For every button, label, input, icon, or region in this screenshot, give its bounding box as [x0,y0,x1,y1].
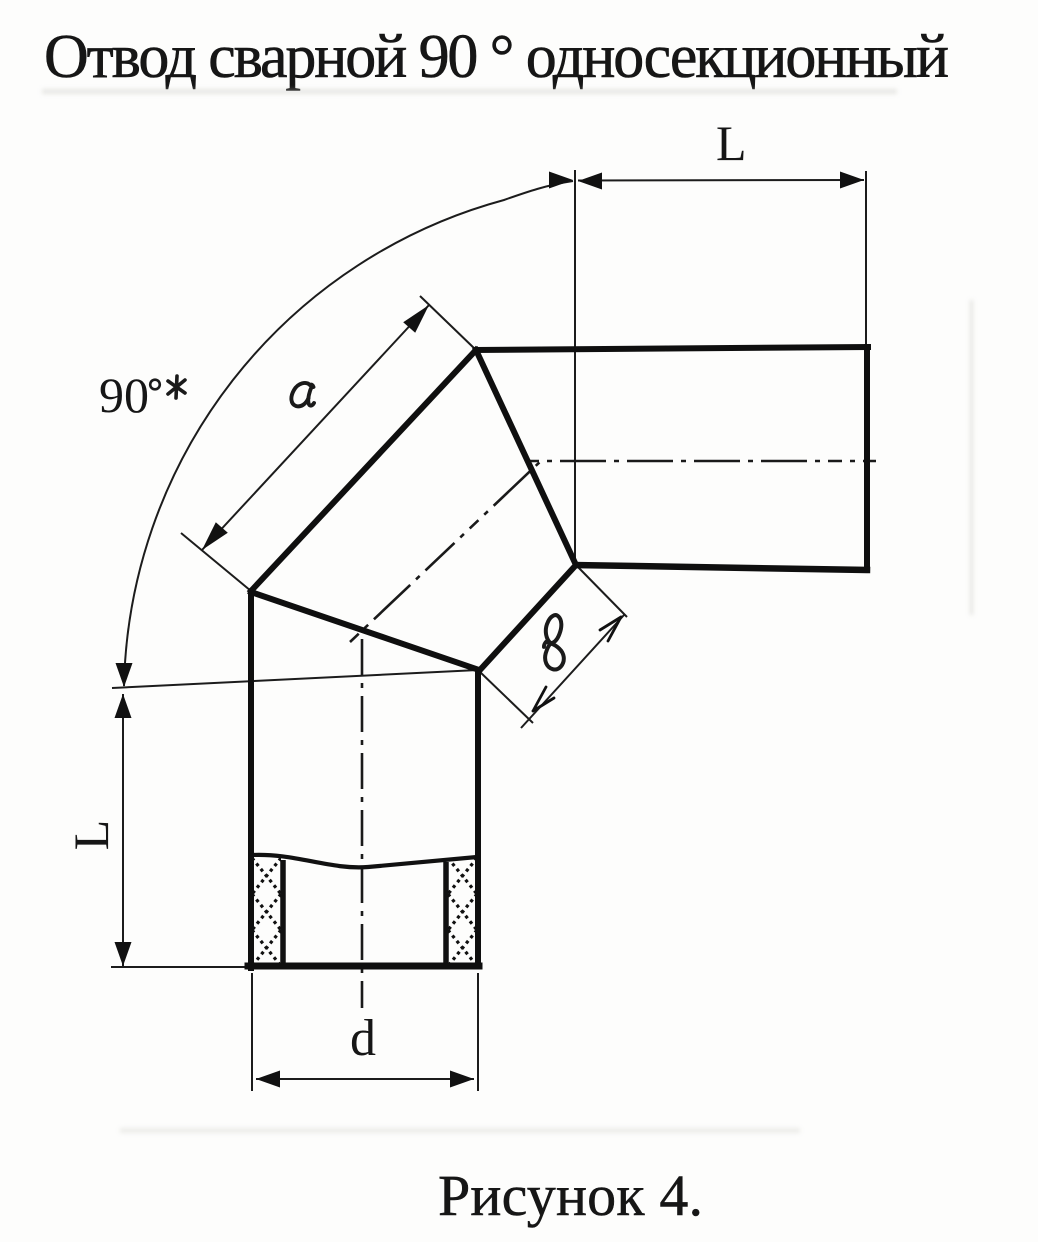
svg-text:L: L [716,115,747,171]
svg-text:Отвод сварной 90 ° односекцион: Отвод сварной 90 ° односекционный [44,23,949,91]
svg-text:90: 90 [99,367,149,423]
svg-text:L: L [63,820,119,851]
svg-text:Рисунок 4.: Рисунок 4. [438,1163,703,1228]
svg-text:d: d [350,1010,376,1067]
